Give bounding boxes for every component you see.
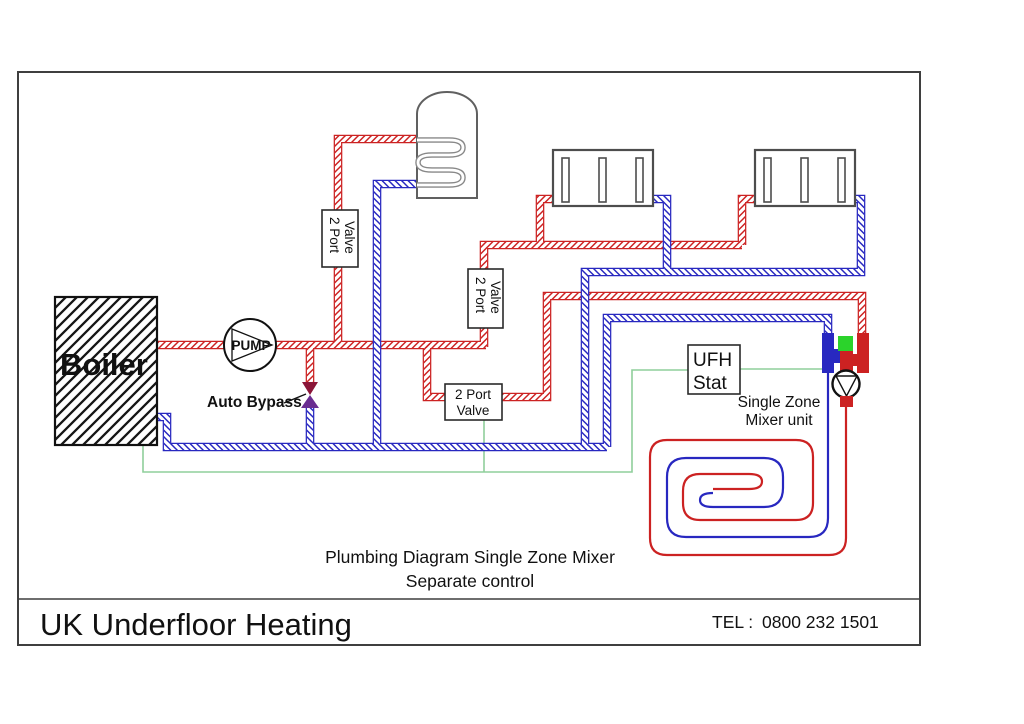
- valve3-label-line2: Valve: [457, 403, 490, 418]
- two-port-valve-1: 2 Port Valve: [322, 210, 358, 267]
- plumbing-diagram-page: Boiler PUMP Auto Bypass 2 Port Valve: [0, 0, 1024, 724]
- boiler-label: Boiler: [60, 347, 148, 382]
- pump: PUMP: [224, 319, 276, 371]
- two-port-valve-2: 2 Port Valve: [468, 269, 503, 328]
- mixer-label-line2: Mixer unit: [745, 412, 813, 429]
- radiator-1: [553, 150, 653, 206]
- ufh-stat-line2: Stat: [693, 373, 728, 394]
- hot-water-cylinder: [417, 92, 477, 198]
- valve1-label-line1: 2 Port: [327, 217, 342, 253]
- mixer-red-port: [857, 333, 869, 373]
- tel-label: TEL :: [712, 612, 753, 632]
- two-port-valve-3: 2 Port Valve: [445, 384, 502, 420]
- tel-number: 0800 232 1501: [762, 612, 879, 632]
- ufh-stat: UFH Stat: [688, 345, 740, 394]
- mixer-label-line1: Single Zone: [738, 394, 821, 411]
- mixer-green-actuator: [838, 336, 853, 351]
- auto-bypass-label: Auto Bypass: [207, 394, 302, 411]
- mixer-blue-port: [822, 333, 834, 373]
- ufh-stat-line1: UFH: [693, 350, 732, 371]
- radiator-2: [755, 150, 855, 206]
- valve2-label-line1: 2 Port: [473, 277, 488, 313]
- valve2-label-line2: Valve: [488, 281, 503, 314]
- caption-line2: Separate control: [406, 571, 534, 591]
- pump-label: PUMP: [231, 338, 270, 353]
- caption-line1: Plumbing Diagram Single Zone Mixer: [325, 547, 615, 567]
- boiler: Boiler: [55, 297, 157, 445]
- valve1-label-line2: Valve: [342, 221, 357, 254]
- company-name: UK Underfloor Heating: [40, 607, 352, 642]
- plumbing-diagram: Boiler PUMP Auto Bypass 2 Port Valve: [0, 0, 1024, 724]
- valve3-label-line1: 2 Port: [455, 387, 491, 402]
